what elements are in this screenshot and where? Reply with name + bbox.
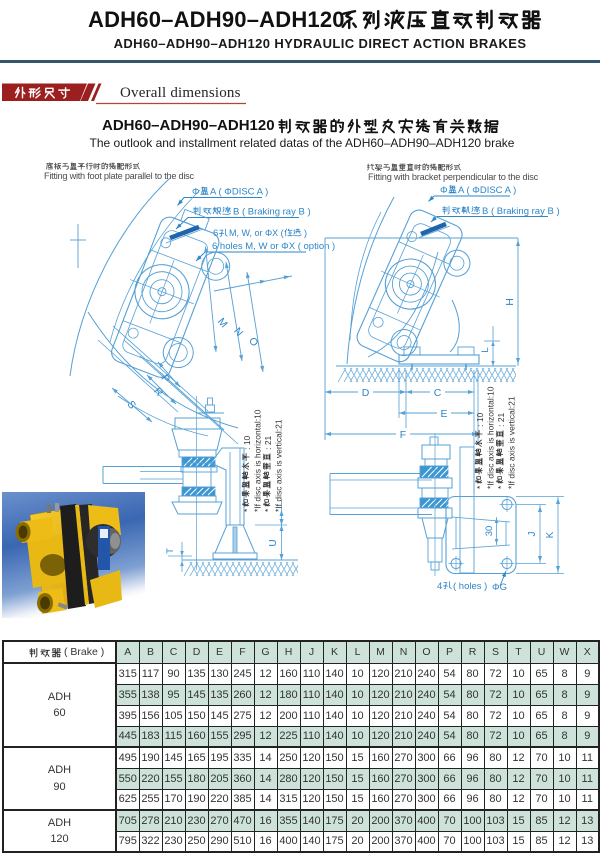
svg-text:6 holes M, W or ΦX ( option ): 6 holes M, W or ΦX ( option ) — [212, 241, 335, 252]
svg-text:A ( ΦDISC A ): A ( ΦDISC A ) — [210, 187, 268, 198]
svg-text:*: * — [475, 485, 485, 489]
svg-text:M, W, or ΦX (: M, W, or ΦX ( — [229, 228, 284, 238]
svg-text:): ) — [304, 228, 307, 238]
svg-text:*If disc axis is horizontal:10: *If disc axis is horizontal:10 — [253, 409, 263, 512]
svg-text:Φ: Φ — [192, 187, 200, 198]
svg-text:K: K — [545, 531, 556, 538]
svg-text:*: * — [496, 485, 506, 489]
svg-text:F: F — [400, 429, 406, 441]
svg-text:B ( Braking ray B ): B ( Braking ray B ) — [233, 207, 311, 218]
svg-text:: 21: : 21 — [263, 435, 273, 449]
svg-text:ΦG: ΦG — [492, 582, 507, 593]
svg-text:*If disc axis is vertical:21: *If disc axis is vertical:21 — [507, 396, 517, 489]
svg-text:Fitting with bracket perpendic: Fitting with bracket perpendicular to th… — [368, 172, 539, 182]
svg-text:*: * — [263, 508, 273, 512]
svg-text:H: H — [504, 298, 516, 306]
svg-text:E: E — [440, 408, 447, 420]
svg-text:D: D — [362, 387, 370, 399]
svg-text:B ( Braking ray B ): B ( Braking ray B ) — [482, 206, 560, 217]
svg-text:R: R — [151, 385, 165, 399]
svg-text:30: 30 — [484, 526, 495, 537]
svg-text:*If disc axis is horizontal:10: *If disc axis is horizontal:10 — [486, 386, 496, 489]
svg-text:( holes ): ( holes ) — [453, 581, 487, 592]
svg-text:4: 4 — [437, 581, 442, 592]
svg-text:N: N — [231, 325, 245, 339]
svg-text:T: T — [165, 548, 176, 554]
svg-text:: 10: : 10 — [242, 435, 252, 449]
svg-text:: 21: : 21 — [496, 412, 506, 426]
svg-text:C: C — [434, 387, 442, 399]
svg-text:U: U — [268, 539, 279, 546]
svg-text:J: J — [527, 532, 538, 537]
svg-text:Fitting with foot plate parall: Fitting with foot plate parallel to the … — [44, 171, 195, 181]
svg-text:Φ: Φ — [440, 185, 448, 196]
svg-text:: 10: : 10 — [475, 412, 485, 426]
svg-text:O: O — [246, 335, 260, 349]
svg-text:L: L — [480, 347, 491, 352]
svg-text:M: M — [215, 316, 230, 330]
svg-text:A ( ΦDISC A ): A ( ΦDISC A ) — [458, 185, 516, 196]
svg-text:*If disc axis is vertical:21: *If disc axis is vertical:21 — [274, 419, 284, 512]
